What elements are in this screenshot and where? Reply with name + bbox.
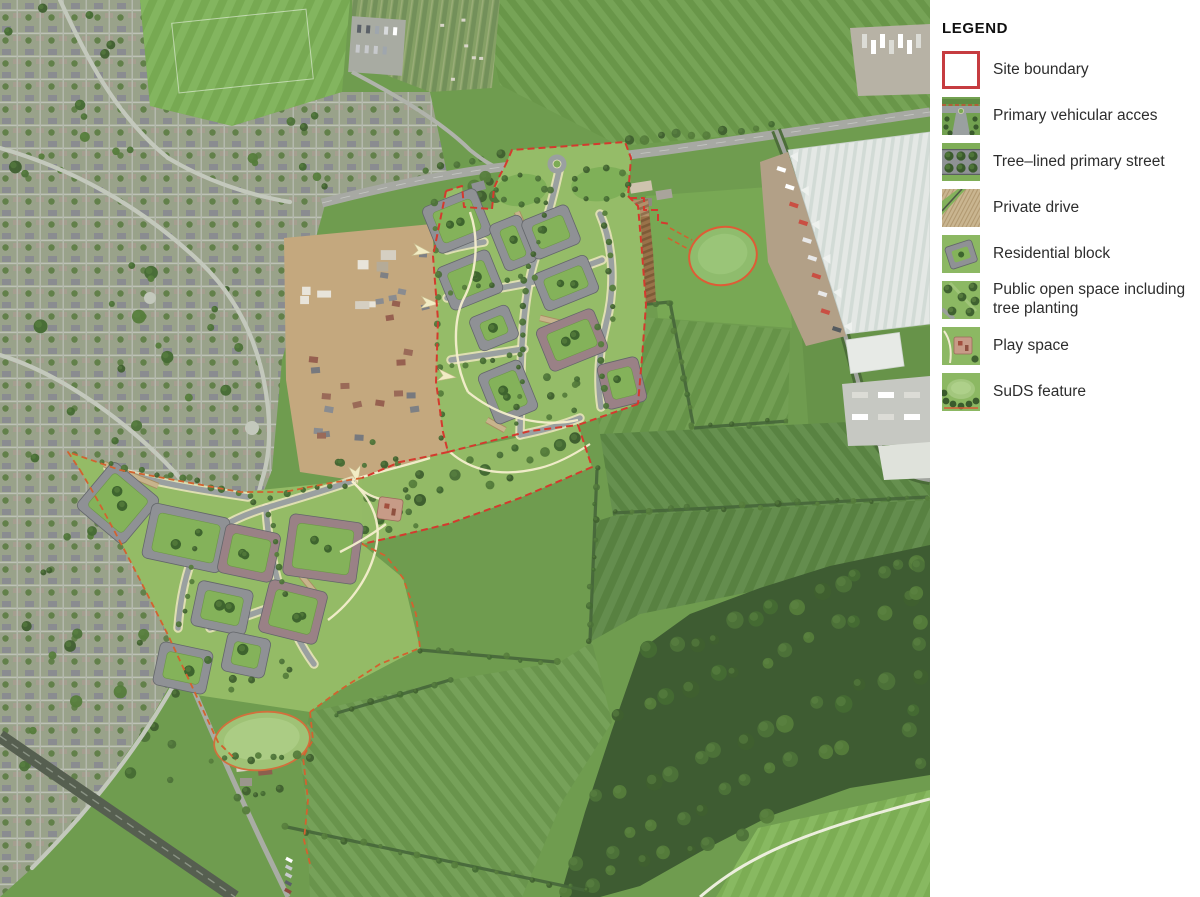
- legend-item-primary-vehicular-access: Primary vehicular acces: [942, 97, 1196, 135]
- legend-items: Site boundaryPrimary vehicular accesTree…: [942, 51, 1196, 411]
- aerial-masterplan-map: [0, 0, 930, 897]
- legend-item-label: SuDS feature: [993, 383, 1086, 402]
- legend-swatch-play-space: [942, 327, 980, 365]
- legend-item-label: Play space: [993, 337, 1069, 356]
- legend-panel: LEGEND Site boundaryPrimary vehicular ac…: [930, 0, 1200, 897]
- residential-block: [220, 631, 271, 679]
- legend-item-private-drive: Private drive: [942, 189, 1196, 227]
- legend-item-label: Tree–lined primary street: [993, 153, 1165, 172]
- legend-item-residential-block: Residential block: [942, 235, 1196, 273]
- legend-swatch-tree-lined-primary-street: [942, 143, 980, 181]
- legend-title: LEGEND: [942, 20, 1196, 37]
- legend-item-label: Residential block: [993, 245, 1110, 264]
- residential-block: [282, 513, 364, 585]
- legend-item-label: Primary vehicular acces: [993, 107, 1158, 126]
- legend-item-public-open-space: Public open space including tree plantin…: [942, 281, 1196, 319]
- masterplan-page: LEGEND Site boundaryPrimary vehicular ac…: [0, 0, 1200, 897]
- legend-swatch-site-boundary: [942, 51, 980, 89]
- construction-site: [284, 224, 447, 480]
- legend-item-tree-lined-primary-street: Tree–lined primary street: [942, 143, 1196, 181]
- legend-item-play-space: Play space: [942, 327, 1196, 365]
- legend-item-label: Site boundary: [993, 61, 1089, 80]
- legend-item-suds-feature: SuDS feature: [942, 373, 1196, 411]
- legend-swatch-primary-vehicular-access: [942, 97, 980, 135]
- masterplan-svg: [0, 0, 930, 897]
- legend-swatch-suds-feature: [942, 373, 980, 411]
- legend-item-label: Public open space including tree plantin…: [993, 281, 1196, 318]
- legend-item-label: Private drive: [993, 199, 1079, 218]
- legend-swatch-residential-block: [942, 235, 980, 273]
- legend-swatch-private-drive: [942, 189, 980, 227]
- legend-swatch-public-open-space: [942, 281, 980, 319]
- legend-item-site-boundary: Site boundary: [942, 51, 1196, 89]
